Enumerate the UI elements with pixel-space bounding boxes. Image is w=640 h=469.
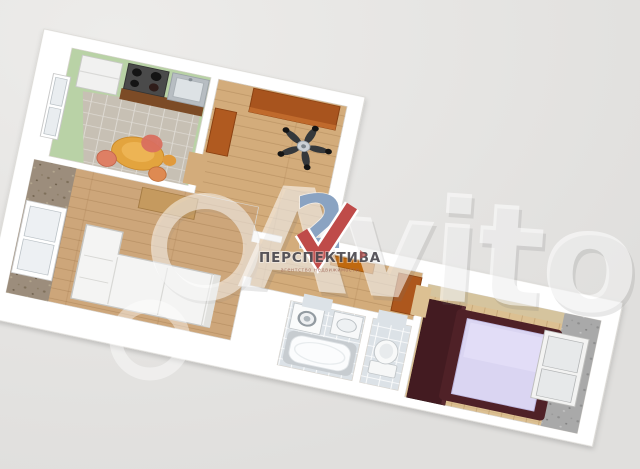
agency-tagline: агентство недвижимости [281,268,360,274]
floor-plan-image: Avito Avito 2 ПЕРСПЕКТИВА агентство недв… [0,0,640,469]
listing-photo: Avito Avito 2 ПЕРСПЕКТИВА агентство недв… [0,0,640,469]
